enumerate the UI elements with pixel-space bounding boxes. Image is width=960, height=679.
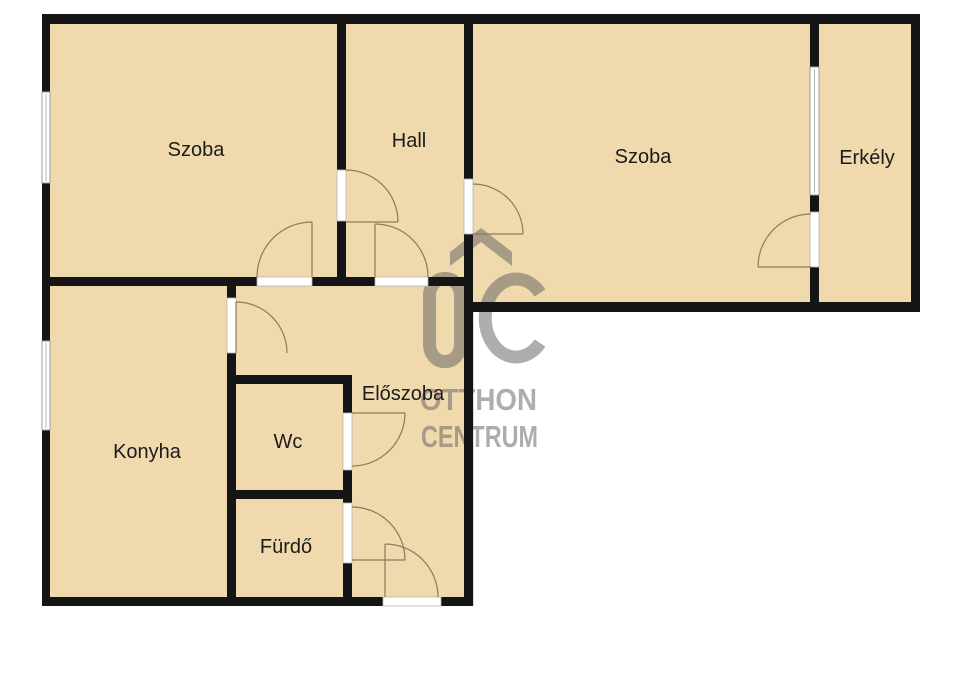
wall-szoba-hall-segment (337, 24, 346, 170)
wall-left-segment (42, 430, 50, 606)
wall-bottom-segment (42, 597, 383, 606)
wall-wc-furdo (227, 490, 352, 499)
door-opening-furdo (343, 503, 352, 563)
room-label-wc: Wc (274, 431, 303, 453)
room-label-szoba-left: Szoba (168, 139, 226, 161)
wall-szoba-erkely-segment (810, 195, 819, 212)
room-label-furdo: Fürdő (260, 536, 312, 558)
door-opening-entrance (383, 597, 441, 606)
room-label-erkely: Erkély (839, 147, 895, 169)
wall-left-segment (42, 183, 50, 341)
wall-furdo-right-segment (343, 563, 352, 606)
door-opening-konyha (227, 298, 236, 353)
floorplan-image: OTTHON CENTRUM (0, 0, 960, 679)
wall-hall-szoba2-segment (464, 24, 473, 179)
door-opening-hall-szoba-right (464, 179, 473, 234)
wall-eloszoba-right (464, 234, 473, 606)
wall-bottom-right-wing (464, 302, 920, 312)
room-label-eloszoba: Előszoba (362, 383, 445, 405)
window-konyha (42, 341, 50, 430)
door-opening-eloszoba-szoba-left (257, 277, 312, 286)
window-szoba-left (42, 92, 50, 183)
door-opening-erkely (810, 212, 819, 267)
wall-konyha-eloszoba-segment (227, 286, 236, 298)
wall-konyha-eloszoba-segment (227, 353, 236, 606)
room-label-hall: Hall (392, 130, 426, 152)
window-szoba-erkely (810, 67, 819, 195)
wall-eloszoba-top-segment (428, 277, 464, 286)
wall-left-segment (42, 14, 50, 92)
wall-szoba-hall-segment (337, 221, 346, 286)
wall-right-outer (911, 14, 920, 312)
wall-wc-top (227, 375, 352, 384)
room-label-szoba-right: Szoba (615, 146, 673, 168)
floorplan-canvas: OTTHON CENTRUM (0, 0, 960, 679)
wall-szoba-erkely-segment (810, 24, 819, 67)
door-opening-hall-szoba-left (337, 170, 346, 221)
wall-top (42, 14, 920, 24)
door-opening-eloszoba-hall (375, 277, 428, 286)
floor-left-block (42, 14, 474, 606)
wall-szoba-konyha (42, 277, 257, 286)
wall-szoba-erkely-segment (810, 267, 819, 312)
watermark-line2: CENTRUM (421, 419, 538, 454)
wall-wc-right-segment (343, 384, 352, 413)
wall-wc-right-segment (343, 470, 352, 503)
door-opening-wc (343, 413, 352, 470)
room-label-konyha: Konyha (113, 441, 182, 463)
